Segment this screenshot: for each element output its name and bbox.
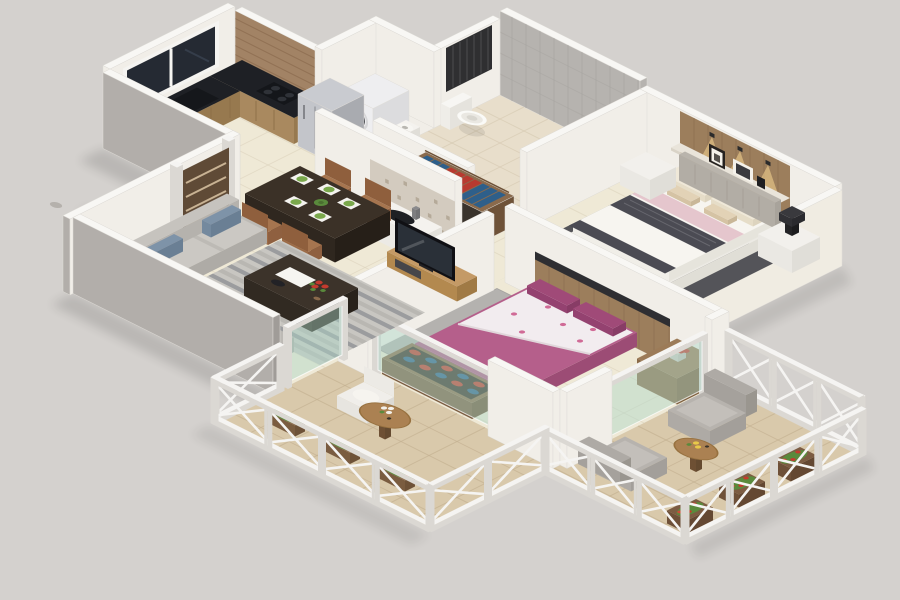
floorplan-render-stage [0,0,900,600]
floorplan-3d-render [0,0,900,600]
